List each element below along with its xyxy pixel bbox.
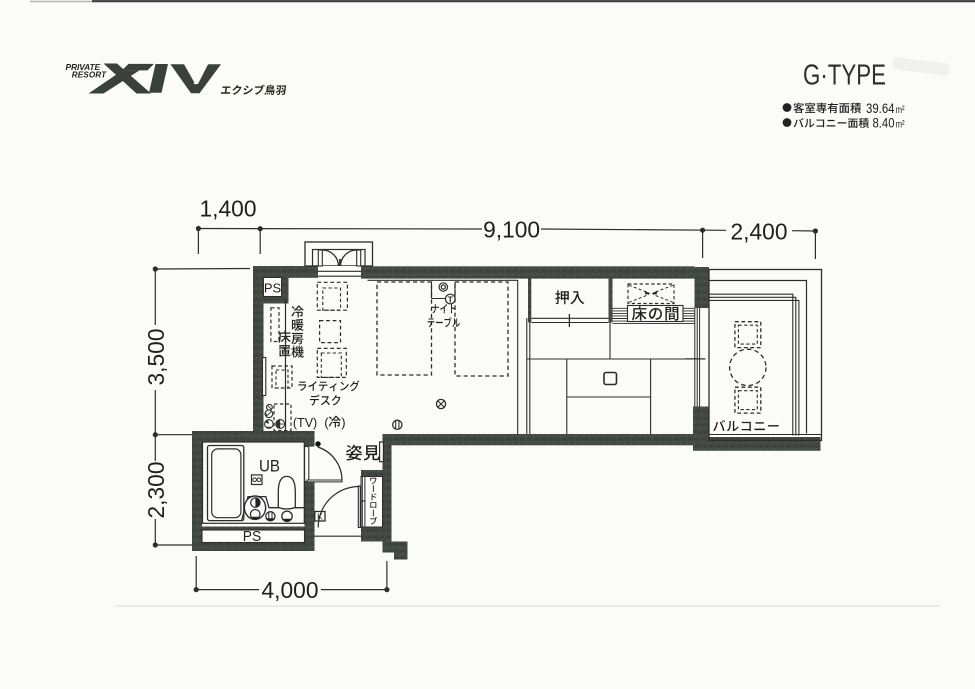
svg-text:PS: PS — [243, 529, 262, 545]
svg-text:T: T — [448, 295, 453, 304]
svg-text:4,000: 4,000 — [262, 577, 319, 603]
svg-text:2,400: 2,400 — [731, 219, 788, 245]
svg-text:G·TYPE: G·TYPE — [803, 60, 886, 92]
svg-text:(: ( — [324, 415, 329, 430]
svg-text:RESORT: RESORT — [72, 70, 107, 79]
svg-text:9,100: 9,100 — [483, 216, 540, 242]
svg-text:3,500: 3,500 — [143, 329, 169, 386]
svg-text:8.40: 8.40 — [873, 114, 895, 130]
svg-text:PS: PS — [264, 281, 282, 296]
svg-text:1,400: 1,400 — [200, 196, 257, 222]
svg-text:2,300: 2,300 — [143, 462, 169, 519]
svg-text:): ) — [341, 415, 345, 430]
svg-text:m²: m² — [896, 105, 906, 116]
svg-text:UB: UB — [259, 457, 280, 475]
svg-text:(TV): (TV) — [293, 416, 317, 430]
svg-text:K: K — [317, 511, 323, 521]
svg-text:m²: m² — [896, 119, 906, 130]
